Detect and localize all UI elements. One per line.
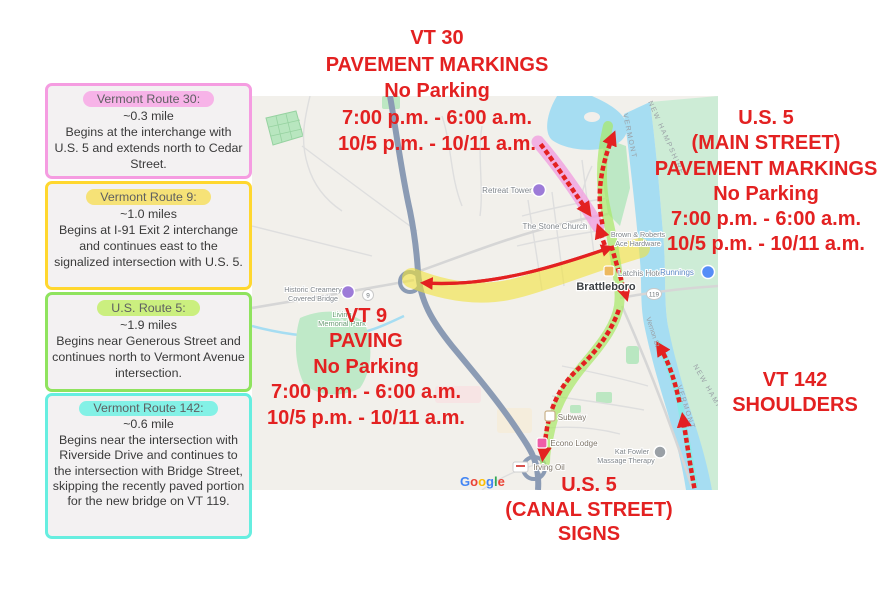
stone-church-label: The Stone Church [523, 222, 588, 231]
callout-us5-main-street: U.S. 5 (MAIN STREET) PAVEMENT MARKINGS N… [655, 106, 878, 258]
latchis-hotel-label: Latchis Hotel [618, 269, 664, 278]
callout-line: No Parking [655, 182, 878, 207]
legend-title-vt142: Vermont Route 142: [79, 401, 217, 416]
svg-text:9: 9 [366, 293, 370, 300]
green-patch [596, 392, 612, 403]
econo-lodge-icon[interactable] [537, 438, 547, 448]
legend-length-vt30: ~0.3 mile [52, 108, 245, 124]
legend-length-us5: ~1.9 miles [52, 317, 245, 333]
legend-desc-vt9: Begins at I-91 Exit 2 interchange and co… [52, 222, 245, 270]
callout-line: 10/5 p.m. - 10/11 a.m. [655, 232, 878, 257]
legend-box-vt30: Vermont Route 30: ~0.3 mile Begins at th… [45, 83, 252, 179]
subway-icon[interactable] [545, 411, 555, 421]
callout-line: U.S. 5 [505, 473, 672, 498]
brattleboro-label: Brattleboro [576, 281, 636, 293]
callout-line: 7:00 p.m. - 6:00 a.m. [326, 105, 549, 132]
callout-line: PAVEMENT MARKINGS [326, 52, 549, 79]
irving-oil-icon[interactable] [513, 462, 528, 472]
legend-desc-vt142: Begins near the intersection with Rivers… [52, 433, 245, 510]
callout-us5-canal-street: U.S. 5 (CANAL STREET) SIGNS [505, 473, 672, 547]
covered-bridge-label-1: Historic Creamery [284, 285, 342, 294]
legend-desc-vt30: Begins at the interchange with U.S. 5 an… [52, 124, 245, 172]
callout-line: 7:00 p.m. - 6:00 a.m. [267, 380, 465, 405]
legend-length-vt9: ~1.0 miles [52, 206, 245, 222]
lake-island [584, 112, 600, 122]
route-9-shield: 9 [363, 290, 374, 301]
legend-length-vt142: ~0.6 mile [52, 417, 245, 432]
callout-line: No Parking [267, 355, 465, 380]
legend-box-vt142: Vermont Route 142: ~0.6 mile Begins near… [45, 393, 252, 539]
callout-vt30: VT 30 PAVEMENT MARKINGS No Parking 7:00 … [326, 25, 549, 158]
latchis-hotel-icon[interactable] [604, 266, 614, 276]
legend-title-vt30: Vermont Route 30: [83, 91, 214, 107]
retreat-tower-label: Retreat Tower [482, 186, 532, 195]
covered-bridge-icon[interactable] [342, 286, 355, 299]
callout-line: VT 9 [267, 304, 465, 329]
callout-line: (CANAL STREET) [505, 498, 672, 523]
kat-fowler-icon[interactable] [654, 446, 666, 458]
callout-line: PAVING [267, 329, 465, 354]
svg-text:119: 119 [649, 292, 660, 299]
callout-line: VT 30 [326, 25, 549, 52]
callout-line: SHOULDERS [732, 393, 858, 418]
irving-oil-label: Irving Oil [533, 463, 565, 472]
legend-box-vt9: Vermont Route 9: ~1.0 miles Begins at I-… [45, 181, 252, 290]
kat-fowler-label-1: Kat Fowler [615, 447, 650, 456]
callout-line: No Parking [326, 78, 549, 105]
callout-line: VT 142 [732, 368, 858, 393]
google-logo[interactable]: Google [460, 474, 505, 489]
callout-line: 10/5 p.m. - 10/11 a.m. [267, 406, 465, 431]
page: 9 119 [0, 0, 886, 590]
legend-title-vt9: Vermont Route 9: [86, 189, 210, 205]
subway-label: Subway [558, 413, 586, 422]
legend-title-us5: U.S. Route 5: [97, 300, 199, 316]
runnings-label: Runnings [660, 268, 694, 277]
legend-desc-us5: Begins near Generous Street and continue… [52, 333, 245, 381]
callout-line: (MAIN STREET) [655, 131, 878, 156]
callout-vt9: VT 9 PAVING No Parking 7:00 p.m. - 6:00 … [267, 304, 465, 431]
callout-line: SIGNS [505, 522, 672, 547]
green-patch [570, 405, 581, 413]
route-119-shield: 119 [647, 289, 662, 300]
covered-bridge-label-2: Covered Bridge [288, 294, 338, 303]
runnings-icon[interactable] [702, 266, 715, 279]
retreat-tower-icon[interactable] [533, 184, 546, 197]
callout-line: PAVEMENT MARKINGS [655, 157, 878, 182]
callout-line: 10/5 p.m. - 10/11 a.m. [326, 131, 549, 158]
kat-fowler-label-2: Massage Therapy [597, 456, 655, 465]
econo-lodge-label: Econo Lodge [550, 439, 598, 448]
callout-line: 7:00 p.m. - 6:00 a.m. [655, 207, 878, 232]
green-patch [626, 346, 639, 364]
callout-vt142: VT 142 SHOULDERS [732, 368, 858, 418]
callout-line: U.S. 5 [655, 106, 878, 131]
legend-box-us5: U.S. Route 5: ~1.9 miles Begins near Gen… [45, 292, 252, 392]
